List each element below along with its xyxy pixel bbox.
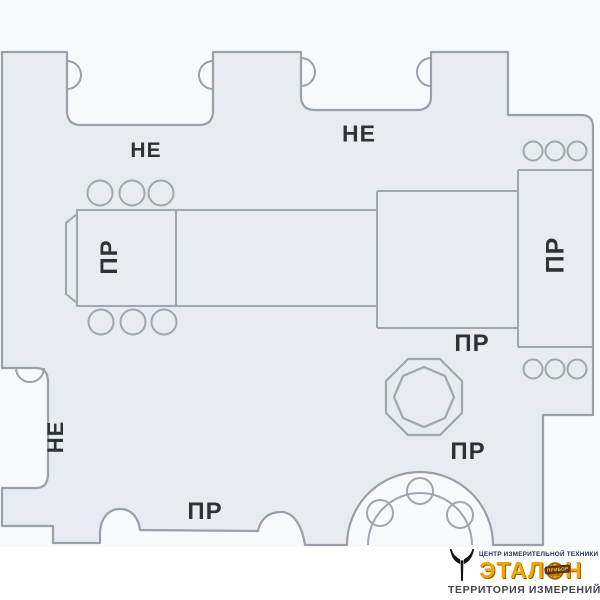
tuning-fork-icon bbox=[448, 549, 476, 581]
label-ne-left-side: НЕ bbox=[43, 421, 69, 454]
part-outline bbox=[2, 52, 593, 545]
label-pr-octagon: ПР bbox=[450, 438, 485, 466]
label-ne-top-right: НЕ bbox=[342, 121, 376, 148]
label-ne-top-left: НЕ bbox=[130, 139, 161, 163]
label-pr-right-column: ПР bbox=[542, 237, 571, 274]
logo-tagline-bottom: ТЕРРИТОРИЯ ИЗМЕРЕНИЙ bbox=[448, 584, 598, 596]
label-pr-left-block: ПР bbox=[96, 239, 124, 274]
gauge-drawing-image: НЕ НЕ НЕ ПР ПР ПР ПР ПР ЦЕНТР ИЗМЕРИТЕЛЬ… bbox=[0, 0, 600, 600]
label-pr-middle: ПР bbox=[454, 330, 489, 358]
label-pr-bottom: ПР bbox=[187, 498, 222, 526]
gauge-drawing-canvas bbox=[0, 0, 600, 600]
etalon-logo: ЦЕНТР ИЗМЕРИТЕЛЬНОЙ ТЕХНИКИ ЭТАЛ Н ПРИ bbox=[448, 549, 598, 596]
logo-brand-text-1: ЭТАЛ bbox=[479, 559, 545, 582]
logo-brand: ЭТАЛ Н ПРИБОР bbox=[479, 558, 598, 582]
